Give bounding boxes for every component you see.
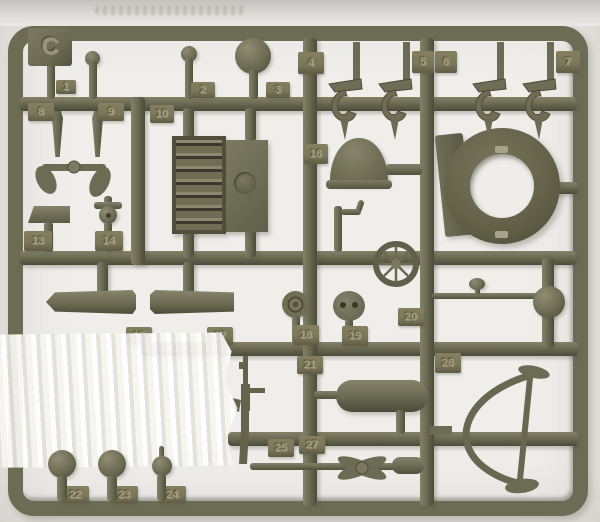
lever-stem-2 (89, 61, 97, 99)
part-number-tag-2: 2 (191, 82, 215, 98)
pill-tank-part (336, 380, 428, 412)
hub-disc-part-18 (282, 291, 309, 318)
ball-stem-24 (157, 474, 166, 501)
ball-part-right (533, 286, 565, 318)
part-number-tag-5: 5 (412, 51, 434, 73)
dome-gate (386, 164, 422, 175)
part-number-tag-1: 1 (56, 80, 76, 94)
part-number-tag-3: 3 (266, 82, 290, 98)
part-number-tag-8: 8 (28, 103, 54, 121)
part-number-tag-13: 13 (24, 231, 52, 251)
plate-hole-left-19 (340, 302, 346, 308)
part-number-tag-19: 19 (342, 326, 368, 346)
ring-part-hole (470, 154, 534, 218)
white-tape-strip (0, 329, 241, 470)
ball-stem-22 (57, 476, 67, 501)
rail-vertical-1 (131, 97, 145, 265)
disc-head-stem (249, 70, 258, 99)
grille-louvered-panel (172, 136, 226, 234)
embossed-text-faint (95, 6, 245, 15)
part-number-tag-27: 27 (299, 436, 325, 454)
part-number-tag-25: 25 (268, 439, 294, 457)
ball-part-24 (152, 456, 172, 476)
dome-brim-16 (326, 180, 392, 189)
part-number-tag-10: 10 (150, 105, 174, 123)
pill-gate-bottom (396, 410, 405, 434)
grille-circular-recess (234, 172, 256, 194)
pontoon-gate-right (183, 262, 194, 296)
part-number-tag-9: 9 (98, 103, 124, 121)
pill-gate-left (314, 391, 338, 399)
part-number-tag-4: 4 (298, 52, 324, 74)
pontoon-part-15 (46, 290, 136, 314)
part-number-tag-7: 7 (556, 51, 580, 73)
plate-hole-right-19 (352, 302, 358, 308)
ring-notch-bottom (495, 231, 508, 238)
pontoon-part-17 (150, 290, 234, 314)
ring-notch-top (495, 146, 508, 153)
part-number-tag-20: 20 (398, 308, 424, 326)
hammer-head-part-13 (28, 206, 70, 223)
part-number-tag-26: 26 (435, 353, 461, 373)
ball-part-23 (98, 450, 126, 478)
plate-part-19 (333, 291, 365, 321)
rail-vertical-3 (420, 38, 434, 506)
rod-part-20 (432, 293, 542, 299)
photo-top-edge (0, 0, 600, 26)
ball-stem-23 (107, 476, 117, 501)
ball-part-22 (48, 450, 76, 478)
sprue-letter-tag: C (28, 28, 72, 66)
grille-gate-top-right (245, 108, 256, 142)
sprue-photo: C (0, 0, 600, 522)
part-number-tag-14: 14 (95, 231, 123, 251)
part-number-tag-18: 18 (293, 325, 319, 345)
disc-head-part (235, 38, 271, 74)
grille-gate-bottom-right (245, 228, 256, 258)
propeller-rod-cap (392, 457, 424, 474)
part-number-tag-16: 16 (304, 144, 328, 164)
part-number-tag-21: 21 (297, 356, 323, 374)
part-number-tag-6: 6 (435, 51, 457, 73)
eyelet-hole-14 (106, 213, 111, 218)
rod-knob-20 (469, 278, 485, 290)
